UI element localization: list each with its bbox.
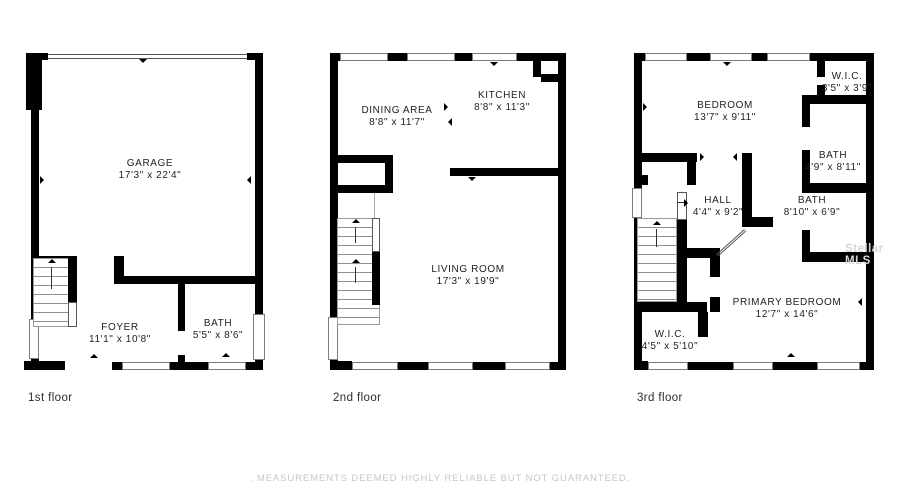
dimension-tick	[247, 176, 251, 184]
stair-direction-arrow	[355, 267, 356, 283]
room-name: BATH	[784, 195, 840, 207]
dimension-tick	[139, 59, 147, 63]
dimension-tick	[733, 153, 737, 161]
room-dims: 11'1" x 10'8"	[89, 334, 151, 346]
wall	[634, 53, 645, 61]
room-name: GARAGE	[119, 158, 182, 170]
window	[253, 314, 265, 360]
staircase	[637, 218, 677, 302]
wall	[170, 362, 208, 370]
stair-direction-arrow	[656, 229, 657, 247]
room-name: W.I.C.	[822, 71, 872, 83]
wall	[24, 361, 65, 370]
dimension-tick	[787, 353, 795, 357]
room-label-bedroom: BEDROOM 13'7" x 9'11"	[694, 100, 756, 124]
room-label-wic-upper: W.I.C. 3'5" x 3'9"	[822, 71, 872, 95]
room-name: LIVING ROOM	[431, 264, 504, 276]
wall	[634, 302, 707, 312]
room-name: DINING AREA	[361, 105, 432, 117]
wall	[634, 153, 697, 162]
dimension-tick	[858, 298, 862, 306]
window	[733, 362, 773, 370]
stair-direction-arrow	[352, 219, 360, 223]
dimension-tick	[490, 62, 498, 66]
dimension-tick	[444, 103, 448, 111]
wall	[246, 362, 263, 370]
room-dims: 17'3" x 22'4"	[119, 170, 182, 182]
wall	[398, 362, 428, 370]
dimension-tick	[90, 354, 98, 358]
room-label-dining-area: DINING AREA 8'8" x 11'7"	[361, 105, 432, 129]
dimension-tick	[468, 177, 476, 181]
room-dims: 4'4" x 9'2"	[693, 207, 743, 219]
wall	[178, 284, 185, 331]
wall	[802, 183, 874, 193]
dimension-tick	[448, 118, 452, 126]
wall	[687, 53, 710, 61]
room-label-wic-lower: W.I.C. 4'5" x 5'10"	[642, 329, 698, 353]
window	[472, 53, 517, 61]
wall	[683, 248, 720, 258]
stair-rail	[372, 218, 380, 252]
room-name: KITCHEN	[474, 90, 530, 102]
wall	[385, 155, 393, 193]
window	[407, 53, 455, 61]
stair-wall	[677, 220, 687, 302]
window	[428, 362, 473, 370]
room-label-bath-lower: BATH 8'10" x 6'9"	[784, 195, 840, 219]
wall	[330, 361, 352, 370]
wall	[802, 230, 810, 252]
dimension-tick	[700, 153, 704, 161]
wall	[742, 217, 773, 227]
room-name: W.I.C.	[642, 329, 698, 341]
wall	[634, 175, 648, 185]
room-name: BATH	[193, 318, 243, 330]
room-dims: 8'8" x 11'7"	[361, 117, 432, 129]
room-label-bath: BATH 5'5" x 8'6"	[193, 318, 243, 342]
window	[208, 362, 246, 370]
stair-rail	[68, 302, 77, 327]
wall	[330, 185, 393, 193]
wall	[330, 53, 340, 61]
floor-caption: 1st floor	[28, 392, 73, 404]
wall	[698, 312, 708, 337]
wall	[688, 362, 733, 370]
wall	[742, 153, 752, 227]
room-dims: 4'5" x 5'10"	[642, 341, 698, 353]
room-label-kitchen: KITCHEN 8'8" x 11'3"	[474, 90, 530, 114]
window	[352, 362, 398, 370]
wall	[388, 53, 407, 61]
room-name: BEDROOM	[694, 100, 756, 112]
stair-rail	[374, 193, 375, 218]
room-dims: 8'10" x 6'9"	[784, 207, 840, 219]
floor-caption: 2nd floor	[333, 392, 381, 404]
wall	[687, 162, 696, 185]
window	[632, 188, 642, 218]
stair-wall	[372, 252, 380, 305]
stair-direction-arrow	[352, 259, 360, 263]
watermark: Stellar MLS	[845, 243, 900, 267]
wall	[634, 361, 648, 370]
wall	[802, 95, 874, 104]
stair-wall	[68, 258, 77, 302]
wall	[27, 53, 48, 60]
wall	[558, 53, 566, 370]
room-label-garage: GARAGE 17'3" x 22'4"	[119, 158, 182, 182]
wall	[710, 297, 720, 312]
room-label-bath-upper: BATH 4'9" x 8'11"	[805, 150, 861, 174]
room-dims: 8'8" x 11'3"	[474, 102, 530, 114]
wall	[450, 168, 558, 176]
floor-plan-canvas: GARAGE 17'3" x 22'4" FOYER 11'1" x 10'8"…	[0, 0, 900, 500]
window	[817, 362, 860, 370]
window	[340, 53, 388, 61]
room-name: PRIMARY BEDROOM	[733, 297, 842, 309]
wall	[533, 61, 541, 77]
stair-direction-arrow	[684, 199, 688, 207]
wall	[773, 362, 817, 370]
room-dims: 17'3" x 19'9"	[431, 276, 504, 288]
garage-door	[48, 54, 247, 59]
dimension-tick	[643, 103, 647, 111]
dimension-tick	[40, 176, 44, 184]
wall	[710, 258, 720, 277]
room-name: HALL	[693, 195, 743, 207]
room-label-foyer: FOYER 11'1" x 10'8"	[89, 322, 151, 346]
stair-direction-arrow	[653, 221, 661, 225]
room-dims: 13'7" x 9'11"	[694, 112, 756, 124]
wall	[860, 362, 874, 370]
room-dims: 4'9" x 8'11"	[805, 162, 861, 174]
dimension-tick	[222, 353, 230, 357]
dimension-tick	[723, 62, 731, 66]
room-label-primary-bedroom: PRIMARY BEDROOM 12'7" x 14'6"	[733, 297, 842, 321]
wall	[517, 53, 566, 61]
room-label-living-room: LIVING ROOM 17'3" x 19'9"	[431, 264, 504, 288]
window	[648, 362, 688, 370]
wall	[330, 155, 393, 163]
window	[645, 53, 687, 61]
wall	[178, 355, 185, 363]
room-name: FOYER	[89, 322, 151, 334]
wall	[541, 74, 558, 82]
window	[122, 362, 170, 370]
room-name: BATH	[805, 150, 861, 162]
floor-caption: 3rd floor	[637, 392, 683, 404]
door-swing	[716, 229, 746, 257]
window	[505, 362, 550, 370]
wall	[473, 362, 505, 370]
wall	[550, 362, 566, 370]
window	[710, 53, 752, 61]
room-dims: 3'5" x 3'9"	[822, 83, 872, 95]
wall	[455, 53, 472, 61]
wall	[112, 362, 122, 370]
stair-direction-arrow	[51, 267, 52, 289]
disclaimer-text: . MEASUREMENTS DEEMED HIGHLY RELIABLE BU…	[190, 473, 690, 484]
wall	[810, 53, 874, 61]
wall	[752, 53, 767, 61]
stair-direction-arrow	[355, 227, 356, 243]
room-dims: 12'7" x 14'6"	[733, 309, 842, 321]
room-label-hall: HALL 4'4" x 9'2"	[693, 195, 743, 219]
stair-direction-arrow	[48, 259, 56, 263]
window	[767, 53, 810, 61]
wall	[118, 276, 255, 284]
room-dims: 5'5" x 8'6"	[193, 330, 243, 342]
wall	[802, 104, 810, 127]
